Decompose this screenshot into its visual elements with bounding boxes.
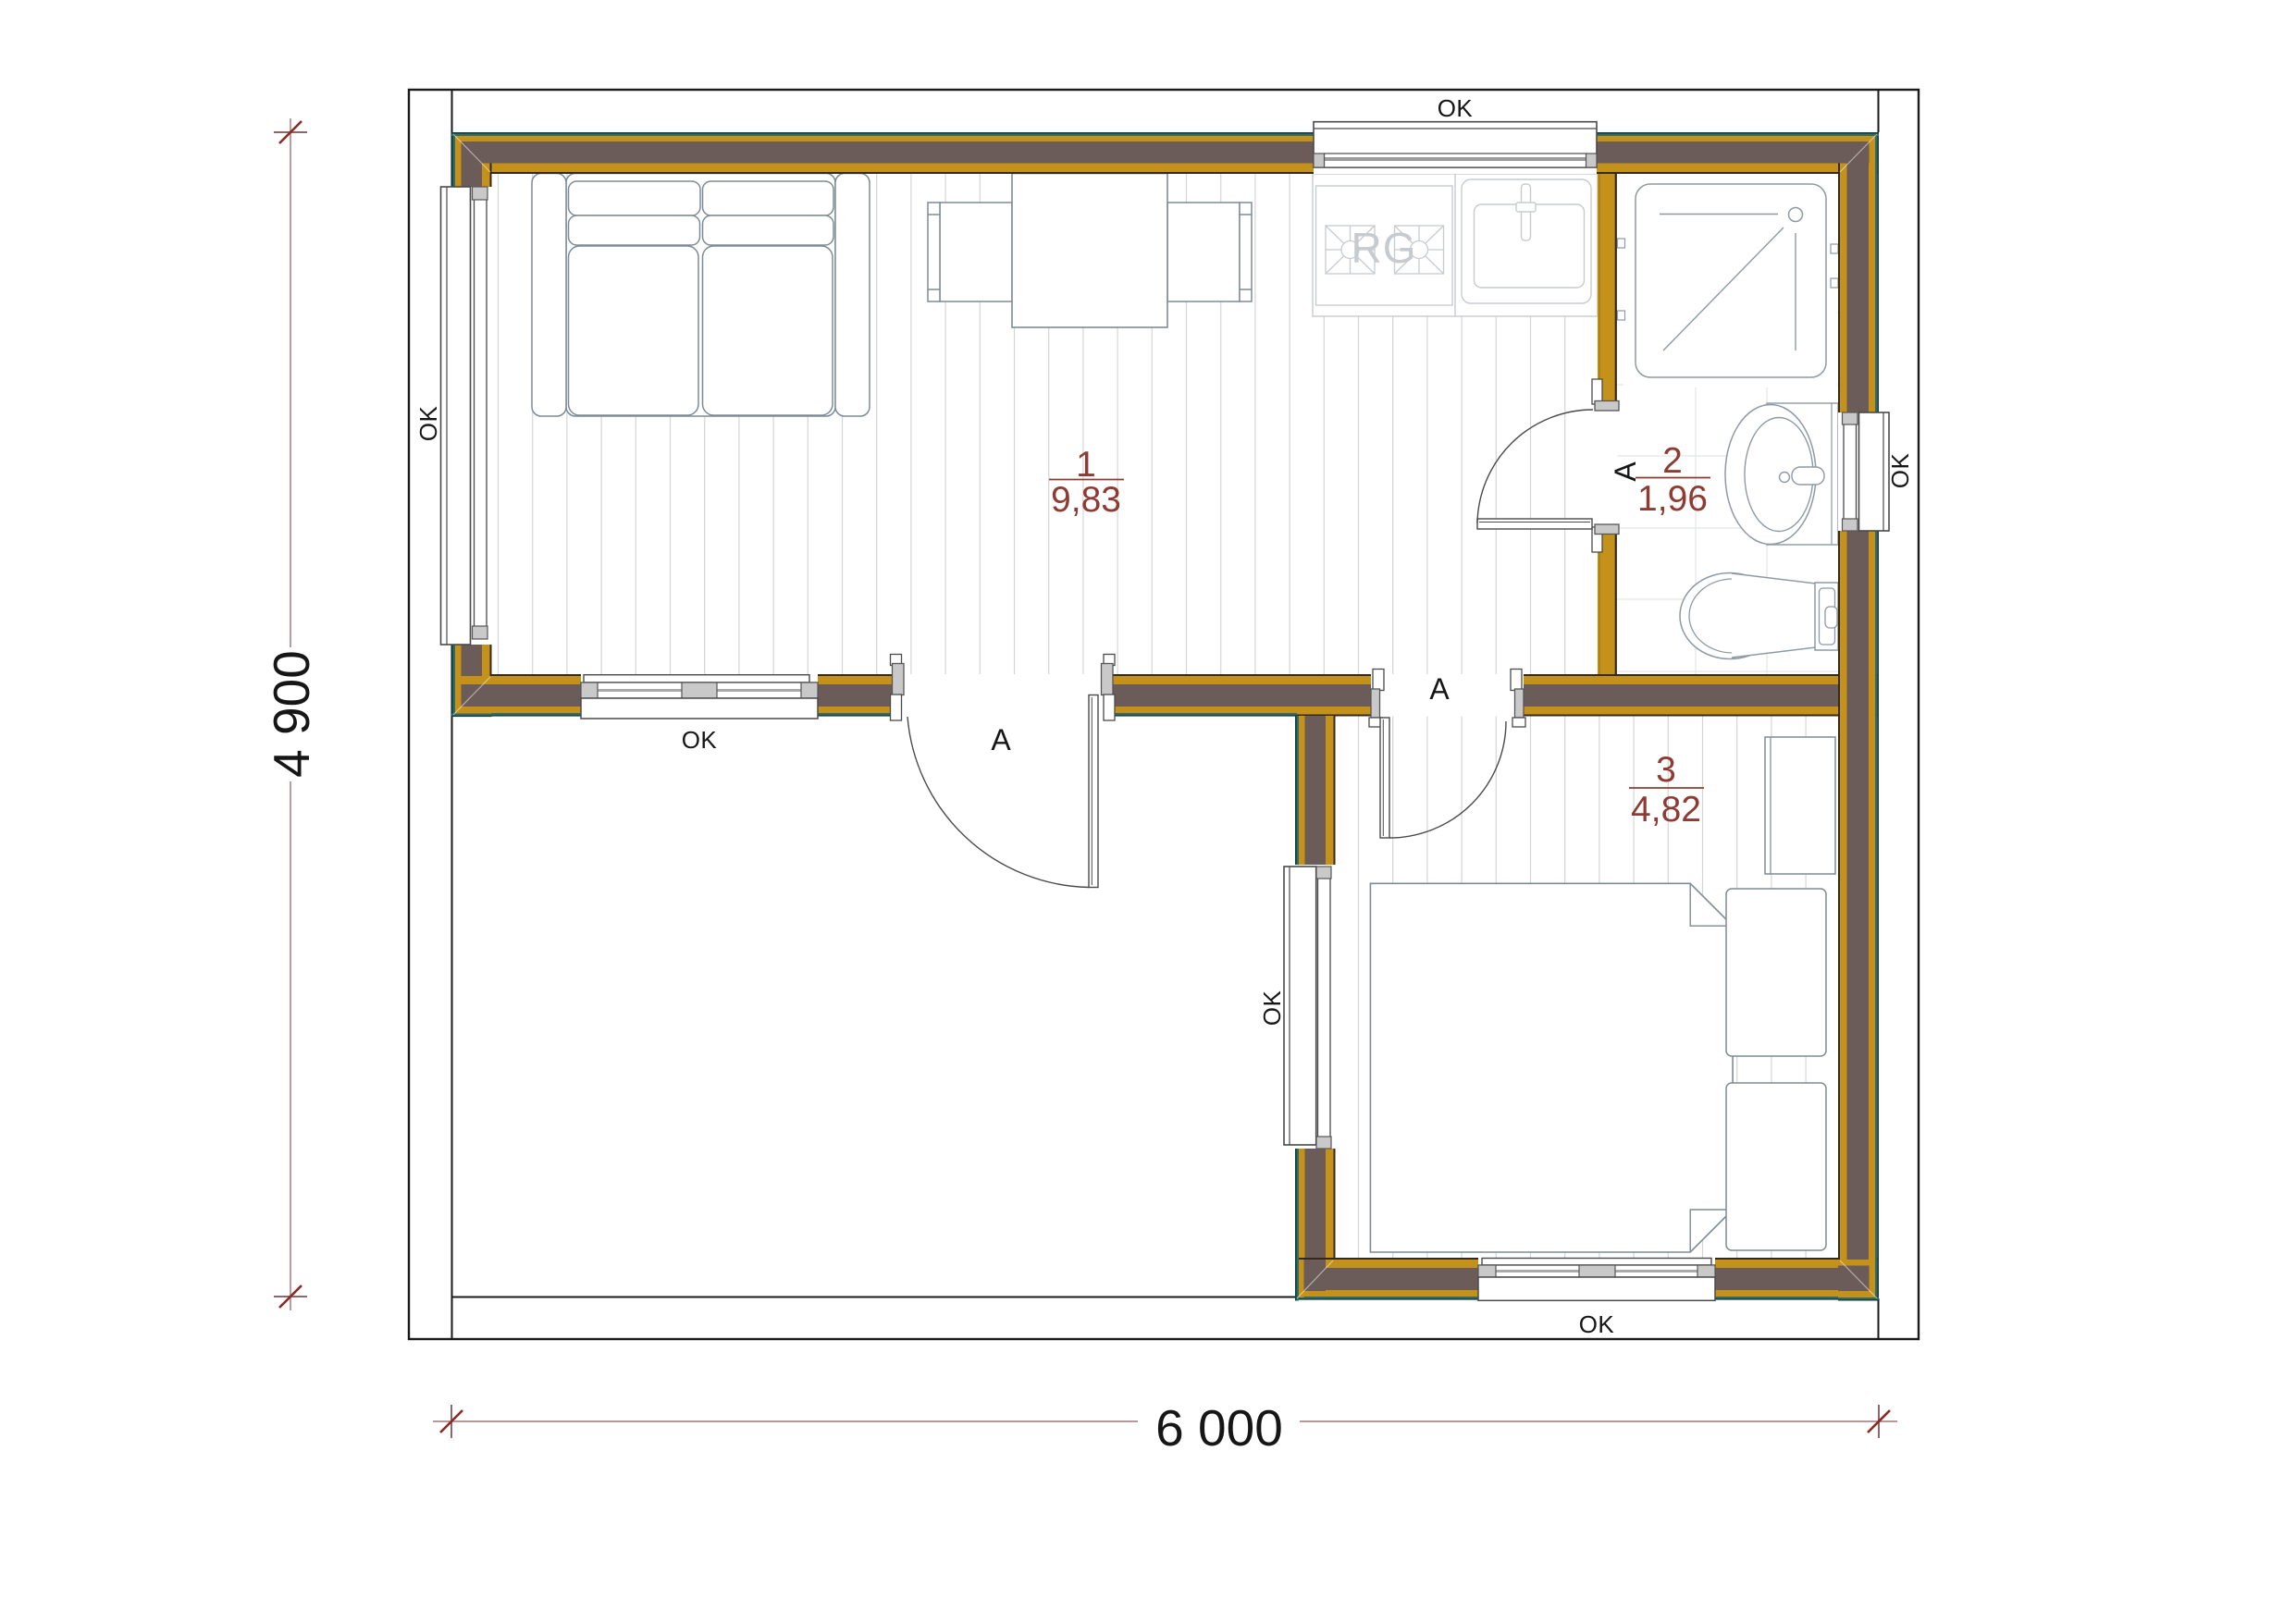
svg-text:6 000: 6 000 xyxy=(1155,1399,1283,1457)
svg-text:A: A xyxy=(991,723,1011,756)
svg-text:OK: OK xyxy=(1438,94,1474,122)
svg-text:3: 3 xyxy=(1656,750,1676,790)
svg-text:OK: OK xyxy=(1886,453,1914,489)
svg-text:A: A xyxy=(1609,461,1642,482)
svg-text:OK: OK xyxy=(1579,1310,1615,1338)
svg-text:RG: RG xyxy=(1352,224,1417,272)
svg-text:OK: OK xyxy=(1258,990,1286,1027)
svg-text:A: A xyxy=(1429,672,1450,706)
svg-text:1,96: 1,96 xyxy=(1637,479,1708,519)
svg-text:1: 1 xyxy=(1076,445,1096,485)
svg-text:4,82: 4,82 xyxy=(1631,790,1701,830)
svg-text:9,83: 9,83 xyxy=(1051,480,1121,520)
svg-text:4 900: 4 900 xyxy=(263,650,320,778)
svg-text:OK: OK xyxy=(414,406,442,442)
svg-text:2: 2 xyxy=(1662,441,1683,481)
svg-text:OK: OK xyxy=(682,726,718,754)
